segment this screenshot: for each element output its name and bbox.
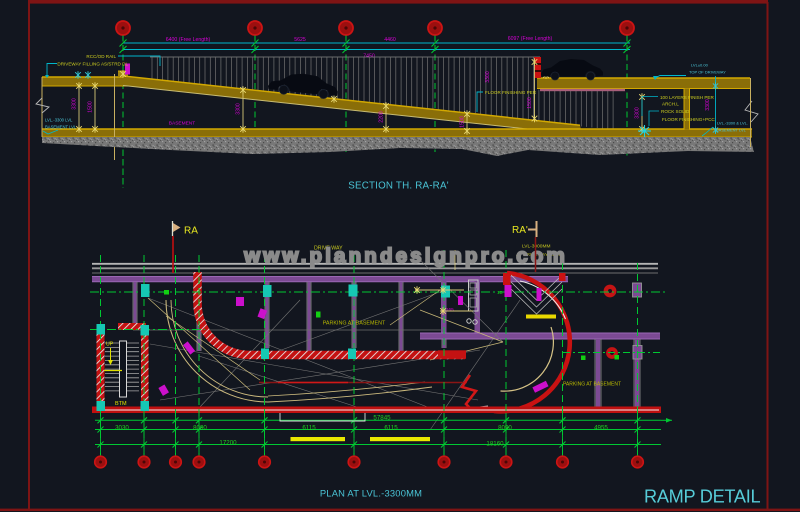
- svg-text:PARKING AT BASEMENT: PARKING AT BASEMENT: [323, 321, 386, 327]
- svg-text:TOP OF DRIVEWAY: TOP OF DRIVEWAY: [689, 70, 726, 75]
- svg-text:LVL.-3300 LVL: LVL.-3300 LVL: [45, 118, 73, 123]
- svg-text:1500: 1500: [460, 116, 466, 128]
- svg-text:UP: UP: [106, 342, 114, 348]
- svg-text:BASEMENT: BASEMENT: [169, 121, 195, 127]
- svg-text:1500: 1500: [527, 97, 533, 109]
- svg-text:3300: 3300: [635, 107, 641, 119]
- svg-text:PLAN AT LVL.-3300MM: PLAN AT LVL.-3300MM: [320, 488, 422, 499]
- svg-text:3300: 3300: [485, 71, 491, 83]
- svg-text:160: 160: [458, 295, 463, 303]
- svg-text:www.planndesignpro.com: www.planndesignpro.com: [243, 245, 568, 268]
- svg-text:BASEMENT LVL: BASEMENT LVL: [716, 128, 747, 133]
- svg-text:1B: 1B: [497, 290, 503, 295]
- svg-text:6115: 6115: [384, 424, 398, 431]
- svg-text:3300: 3300: [705, 99, 711, 111]
- svg-text:6115: 6115: [302, 424, 316, 431]
- svg-text:57845: 57845: [373, 415, 391, 422]
- svg-text:3300: 3300: [236, 103, 242, 115]
- svg-text:8090: 8090: [193, 424, 207, 431]
- svg-text:FLOOR FINISHING+PCC: FLOOR FINISHING+PCC: [662, 117, 715, 122]
- svg-text:3300: 3300: [72, 98, 78, 110]
- svg-text:FLOOR FINISHING PER: FLOOR FINISHING PER: [485, 90, 537, 95]
- svg-text:6400 (Free Length): 6400 (Free Length): [166, 37, 211, 43]
- svg-text:DRIVEWAY FILLING AS/STRD DL: DRIVEWAY FILLING AS/STRD DL: [57, 62, 128, 67]
- svg-text:5625: 5625: [294, 37, 306, 43]
- svg-text:LVL±0.00: LVL±0.00: [691, 63, 709, 68]
- svg-text:17200: 17200: [219, 439, 237, 446]
- svg-text:SECTION TH. RA-RA': SECTION TH. RA-RA': [348, 181, 449, 192]
- svg-text:4460: 4460: [384, 37, 396, 43]
- svg-text:RAMP DETAIL: RAMP DETAIL: [644, 487, 760, 507]
- svg-text:3030: 3030: [115, 424, 129, 431]
- svg-text:RA: RA: [184, 226, 198, 237]
- svg-text:8090: 8090: [498, 424, 512, 431]
- svg-text:6097 (Free Length): 6097 (Free Length): [508, 36, 553, 42]
- svg-text:LVL.-3300 & LVL.: LVL.-3300 & LVL.: [717, 121, 748, 126]
- svg-text:1500: 1500: [88, 101, 94, 113]
- svg-text:RA': RA': [512, 225, 528, 236]
- svg-text:2200: 2200: [379, 111, 385, 123]
- svg-text:BTM: BTM: [115, 401, 127, 407]
- svg-text:ARCH.L: ARCH.L: [662, 102, 679, 107]
- svg-text:PARKING AT BASEMENT: PARKING AT BASEMENT: [563, 382, 621, 388]
- svg-text:4955: 4955: [594, 424, 608, 431]
- svg-text:BASEMENT LVL: BASEMENT LVL: [45, 125, 77, 130]
- svg-text:100 LAYERS FINISH PER: 100 LAYERS FINISH PER: [660, 95, 714, 100]
- svg-text:ROCK SOLID: ROCK SOLID: [661, 109, 690, 114]
- svg-text:18160: 18160: [486, 440, 504, 447]
- svg-text:RCC/OD RAIL: RCC/OD RAIL: [86, 54, 116, 59]
